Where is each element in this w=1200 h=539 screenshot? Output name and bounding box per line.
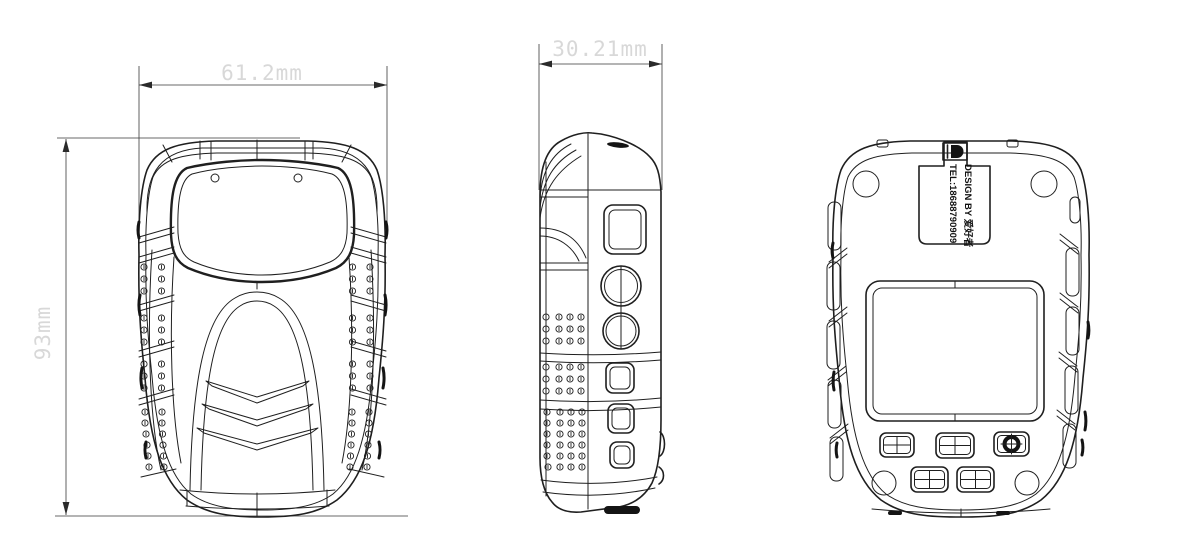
side-band-lines	[540, 352, 661, 495]
back-screw-boss-top-left	[853, 171, 879, 197]
back-label-line1: DESIGN BY 爱好者	[962, 164, 974, 248]
back-nav-button-1	[880, 433, 914, 457]
technical-drawing-canvas: 61.2mm 93mm 30.21mm	[0, 0, 1200, 539]
front-mic-hole-right	[294, 174, 302, 182]
back-label-logo	[943, 143, 967, 160]
height-label: 93mm	[31, 306, 55, 361]
back-inner-outline	[841, 153, 1081, 510]
side-top-lens-slot	[607, 141, 629, 148]
front-arch-panel	[190, 292, 324, 490]
side-square-button-1	[606, 363, 634, 393]
front-grip-right	[342, 222, 387, 477]
back-label-line2: TEL:18688790909	[947, 164, 958, 243]
body-camera-three-view-drawing: 61.2mm 93mm 30.21mm	[0, 0, 1200, 539]
front-top-band	[147, 140, 377, 212]
back-label-panel: DESIGN BY 爱好者 TEL:18688790909	[919, 142, 990, 248]
back-bottom-band	[872, 509, 1050, 517]
front-mic-hole-left	[211, 174, 219, 182]
side-speaker-dots	[543, 314, 585, 470]
back-power-button	[994, 432, 1029, 456]
front-chevron-ridges	[197, 381, 318, 450]
side-square-button-2	[608, 404, 634, 433]
front-grip-left	[138, 222, 181, 477]
side-top-button	[604, 205, 646, 254]
back-side-rail-left	[827, 202, 848, 481]
side-bottom-connector	[604, 506, 640, 514]
back-nav-button-3	[911, 467, 948, 492]
side-front-bezel-profile	[540, 228, 588, 270]
side-view	[540, 133, 665, 514]
side-seam-lines	[540, 134, 661, 509]
back-outline	[833, 141, 1089, 517]
front-view	[138, 140, 387, 517]
back-screw-boss-bottom-right	[1015, 471, 1039, 495]
front-camera-bezel	[171, 160, 354, 289]
back-side-rail-right	[1057, 197, 1089, 468]
back-view: DESIGN BY 爱好者 TEL:18688790909	[827, 140, 1089, 517]
front-width-label: 61.2mm	[221, 61, 303, 85]
dimension-depth: 30.21mm	[539, 37, 662, 190]
back-nav-button-2	[936, 433, 974, 458]
back-nav-button-4	[957, 467, 994, 492]
side-square-button-3	[610, 442, 634, 468]
front-outline	[139, 141, 385, 517]
depth-label: 30.21mm	[552, 37, 648, 61]
back-screen	[866, 281, 1044, 421]
back-screw-boss-top-right	[1031, 171, 1057, 197]
